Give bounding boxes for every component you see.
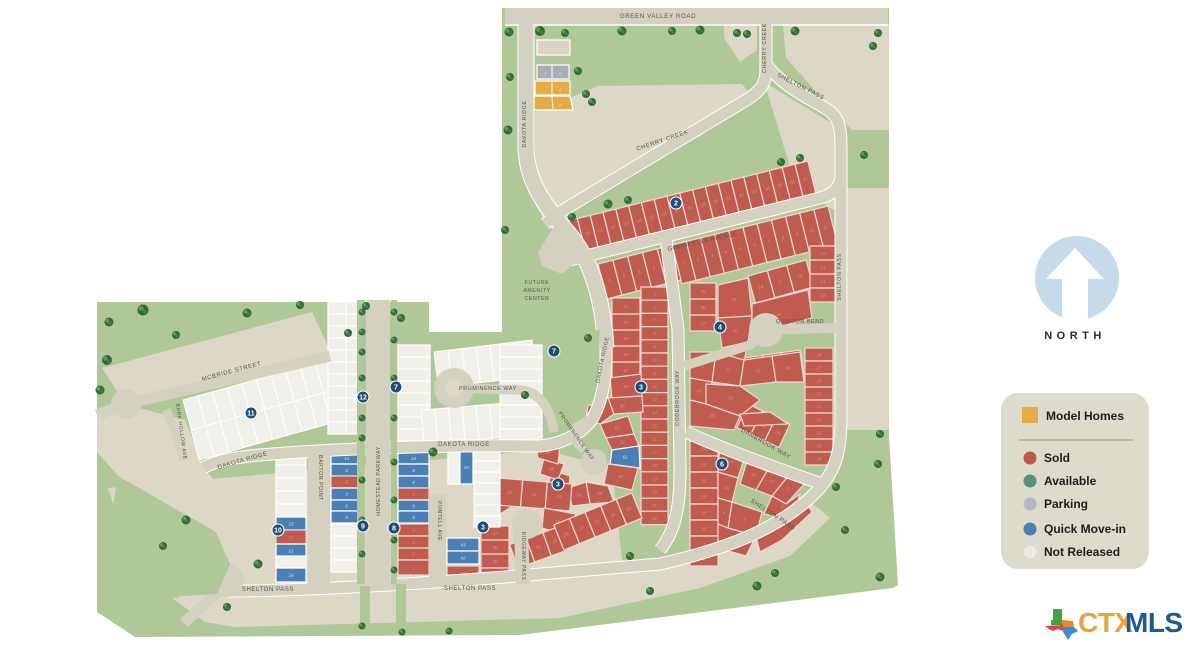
svg-text:66: 66: [624, 384, 629, 389]
svg-text:HOMESTEAD PARKWAY: HOMESTEAD PARKWAY: [376, 446, 382, 515]
svg-text:56: 56: [549, 467, 554, 472]
svg-text:71: 71: [624, 304, 629, 309]
svg-text:17: 17: [770, 479, 775, 484]
svg-text:11: 11: [652, 371, 656, 376]
svg-text:16: 16: [751, 472, 756, 477]
svg-text:31: 31: [817, 418, 822, 423]
svg-text:15: 15: [821, 293, 826, 298]
svg-text:10: 10: [652, 358, 657, 363]
svg-text:MLS: MLS: [1125, 607, 1183, 638]
svg-text:12: 12: [359, 394, 367, 401]
svg-text:12: 12: [821, 251, 826, 256]
svg-text:19: 19: [288, 573, 294, 578]
svg-text:28: 28: [816, 379, 822, 384]
svg-text:10: 10: [702, 494, 707, 499]
svg-text:58: 58: [577, 493, 582, 498]
svg-text:3: 3: [412, 540, 415, 545]
svg-text:15: 15: [724, 485, 729, 490]
svg-text:65: 65: [620, 404, 625, 409]
svg-text:1: 1: [544, 72, 546, 76]
svg-text:30: 30: [786, 366, 791, 371]
svg-text:DAKOTA RIDGE: DAKOTA RIDGE: [522, 100, 528, 147]
svg-text:39: 39: [493, 559, 498, 564]
svg-text:8: 8: [412, 480, 415, 485]
svg-text:3: 3: [639, 384, 643, 391]
svg-text:22: 22: [725, 368, 731, 373]
svg-text:2: 2: [781, 503, 785, 508]
svg-text:6: 6: [720, 461, 724, 468]
svg-text:Quick Move-in: Quick Move-in: [1044, 522, 1126, 536]
svg-text:9: 9: [361, 523, 365, 530]
svg-text:7: 7: [552, 348, 556, 355]
svg-text:59: 59: [597, 491, 602, 496]
svg-text:38: 38: [493, 545, 498, 550]
svg-text:6: 6: [345, 504, 348, 509]
svg-text:Sold: Sold: [1044, 451, 1070, 465]
svg-text:4: 4: [718, 324, 722, 331]
svg-text:PONTELL AVE: PONTELL AVE: [436, 501, 442, 541]
svg-text:PRUMINENCE WAY: PRUMINENCE WAY: [459, 386, 517, 392]
svg-text:14: 14: [728, 459, 733, 464]
svg-text:14: 14: [652, 410, 657, 415]
svg-text:19: 19: [776, 312, 781, 317]
svg-text:17: 17: [652, 450, 657, 455]
svg-text:3: 3: [481, 524, 485, 531]
svg-text:Parking: Parking: [1044, 497, 1088, 511]
svg-text:SHELTON PASS: SHELTON PASS: [837, 253, 843, 301]
svg-text:12: 12: [702, 462, 707, 467]
svg-text:43: 43: [461, 543, 466, 548]
svg-text:70: 70: [624, 320, 629, 325]
svg-text:60: 60: [618, 474, 623, 479]
svg-text:9: 9: [412, 468, 415, 473]
svg-text:RIDGEWAY PASS: RIDGEWAY PASS: [520, 532, 526, 581]
svg-text:42: 42: [461, 556, 466, 561]
svg-text:33: 33: [817, 444, 822, 449]
svg-text:69: 69: [624, 336, 629, 341]
svg-text:5: 5: [345, 515, 348, 520]
svg-text:Model Homes: Model Homes: [1046, 409, 1124, 423]
svg-text:67: 67: [624, 368, 629, 373]
svg-text:63: 63: [615, 426, 620, 431]
svg-text:40: 40: [697, 389, 702, 394]
svg-text:Not Released: Not Released: [1044, 545, 1120, 559]
svg-text:7: 7: [345, 492, 348, 497]
svg-text:34: 34: [817, 457, 822, 462]
svg-text:FUTURE: FUTURE: [525, 280, 550, 286]
svg-text:AMENITY: AMENITY: [523, 288, 550, 294]
svg-text:1: 1: [412, 566, 415, 571]
svg-text:10: 10: [344, 456, 350, 461]
svg-text:11: 11: [702, 478, 707, 483]
svg-text:13: 13: [652, 397, 657, 402]
svg-text:4: 4: [559, 103, 561, 107]
svg-text:8: 8: [392, 525, 396, 532]
svg-text:2: 2: [411, 552, 415, 557]
svg-text:26: 26: [816, 353, 822, 358]
svg-text:CENTER: CENTER: [525, 296, 550, 302]
svg-text:QUINTON BEND: QUINTON BEND: [776, 319, 824, 325]
svg-text:23: 23: [287, 522, 294, 527]
svg-text:19: 19: [652, 476, 657, 481]
svg-text:NORTH: NORTH: [1044, 330, 1106, 342]
svg-text:4: 4: [412, 528, 415, 533]
svg-text:Available: Available: [1044, 474, 1097, 488]
svg-text:CHERRY CREEK: CHERRY CREEK: [762, 23, 768, 73]
svg-text:23: 23: [755, 369, 761, 374]
svg-text:37: 37: [493, 531, 498, 536]
svg-text:22: 22: [651, 516, 657, 521]
svg-text:49: 49: [701, 289, 706, 294]
svg-text:19: 19: [732, 297, 737, 302]
svg-text:7: 7: [394, 384, 398, 391]
svg-text:2: 2: [674, 200, 678, 207]
svg-text:10: 10: [411, 456, 417, 461]
svg-text:14: 14: [821, 279, 826, 284]
svg-text:GREEN VALLEY ROAD: GREEN VALLEY ROAD: [620, 13, 696, 20]
svg-text:62: 62: [620, 440, 625, 445]
svg-text:7: 7: [412, 492, 415, 497]
svg-text:38: 38: [710, 413, 715, 418]
svg-text:DAKOTA RIDGE: DAKOTA RIDGE: [438, 442, 490, 448]
svg-text:SHELTON PASS: SHELTON PASS: [242, 587, 294, 593]
svg-text:47: 47: [701, 321, 706, 326]
svg-text:10: 10: [274, 527, 282, 534]
svg-text:20: 20: [651, 490, 657, 495]
svg-text:22: 22: [287, 535, 294, 540]
svg-text:39: 39: [728, 396, 733, 401]
svg-text:SHELTON PASS: SHELTON PASS: [444, 586, 496, 592]
svg-text:30: 30: [817, 405, 822, 410]
svg-text:27: 27: [816, 366, 822, 371]
svg-text:11: 11: [247, 410, 255, 417]
svg-text:13: 13: [821, 265, 826, 270]
svg-text:61: 61: [623, 455, 629, 460]
svg-text:16: 16: [652, 437, 657, 442]
svg-text:32: 32: [817, 431, 822, 436]
svg-text:68: 68: [624, 352, 629, 357]
svg-text:15: 15: [652, 424, 657, 429]
svg-text:CODEBROOK WAY: CODEBROOK WAY: [675, 370, 681, 426]
svg-text:18: 18: [652, 463, 657, 468]
svg-text:9: 9: [345, 468, 348, 473]
svg-text:5: 5: [412, 515, 415, 520]
svg-text:BARTON POINT: BARTON POINT: [317, 455, 323, 501]
svg-text:6: 6: [412, 504, 415, 509]
svg-text:8: 8: [345, 480, 348, 485]
svg-text:21: 21: [651, 503, 657, 508]
svg-text:29: 29: [816, 392, 822, 397]
svg-text:48: 48: [701, 305, 706, 310]
svg-text:21: 21: [287, 549, 294, 554]
svg-text:20: 20: [732, 329, 738, 334]
svg-text:3: 3: [556, 481, 560, 488]
svg-text:12: 12: [652, 384, 657, 389]
